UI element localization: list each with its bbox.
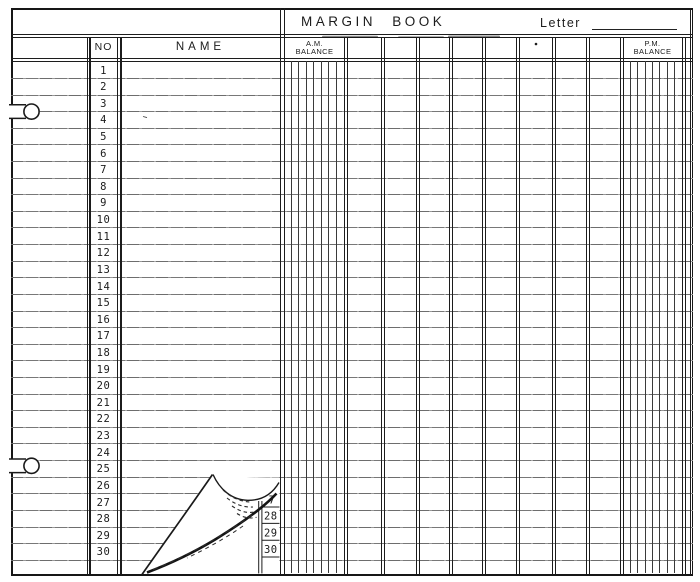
ink-smudge (448, 36, 500, 38)
revealed-row-number: 30 (264, 544, 278, 556)
page-curl: 7282930 (142, 474, 280, 575)
ink-smudge (398, 36, 444, 38)
revealed-row-number: 29 (264, 527, 278, 539)
punch-hole (8, 458, 39, 473)
punch-hole (8, 104, 39, 119)
revealed-row-number: 28 (264, 511, 278, 523)
scan-overlay: 7282930 (0, 0, 700, 582)
margin-book-form: MARGIN BOOK Letter NO NAME A.M. BALANCE … (0, 0, 700, 582)
ink-smudge (322, 36, 378, 38)
dot-speck (535, 43, 538, 46)
tiny-speck (143, 117, 147, 118)
